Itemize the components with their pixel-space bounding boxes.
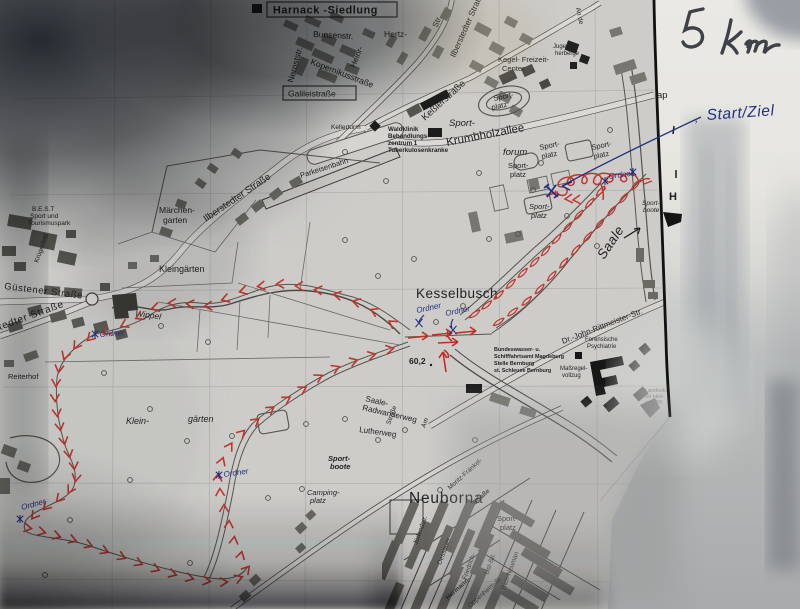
svg-text:Sport-: Sport- <box>529 202 550 211</box>
svg-text:boote: boote <box>330 462 350 471</box>
svg-text:Kesselbusch: Kesselbusch <box>416 286 498 301</box>
svg-text:Sport-: Sport- <box>508 161 529 170</box>
svg-text:Waldklinik: Waldklinik <box>388 126 419 133</box>
svg-text:,: , <box>695 111 698 125</box>
svg-text:Jugend-: Jugend- <box>553 44 575 50</box>
svg-text:herberge: herberge <box>555 51 580 57</box>
svg-text:platz: platz <box>510 170 526 179</box>
svg-text:Behandlungs-: Behandlungs- <box>388 133 429 140</box>
svg-text:Schifffahrtsamt Magdeburg: Schifffahrtsamt Magdeburg <box>494 354 564 360</box>
svg-text:vollzug: vollzug <box>562 373 581 379</box>
svg-text:Tuberkulosenkranke: Tuberkulosenkranke <box>388 147 449 154</box>
svg-text:Sport-: Sport- <box>642 200 661 207</box>
svg-text:forum: forum <box>503 147 527 158</box>
svg-text:Maßregel-: Maßregel- <box>560 366 587 372</box>
svg-text:platz: platz <box>530 211 547 220</box>
svg-text:60,2: 60,2 <box>409 356 426 366</box>
svg-text:Psychiatrie: Psychiatrie <box>587 344 617 350</box>
svg-text:H: H <box>669 191 677 203</box>
svg-text:ap: ap <box>657 90 668 101</box>
svg-text:Forensische: Forensische <box>585 337 618 343</box>
svg-text:zentrum 1: zentrum 1 <box>388 140 418 147</box>
svg-text:Sport-: Sport- <box>449 118 475 129</box>
svg-text:boote: boote <box>643 207 660 214</box>
svg-text:Stelle Bernburg: Stelle Bernburg <box>494 361 534 367</box>
svg-text:st. Schleuse Bernburg: st. Schleuse Bernburg <box>494 368 551 374</box>
svg-text:Bundeswasser- u.: Bundeswasser- u. <box>494 347 541 353</box>
